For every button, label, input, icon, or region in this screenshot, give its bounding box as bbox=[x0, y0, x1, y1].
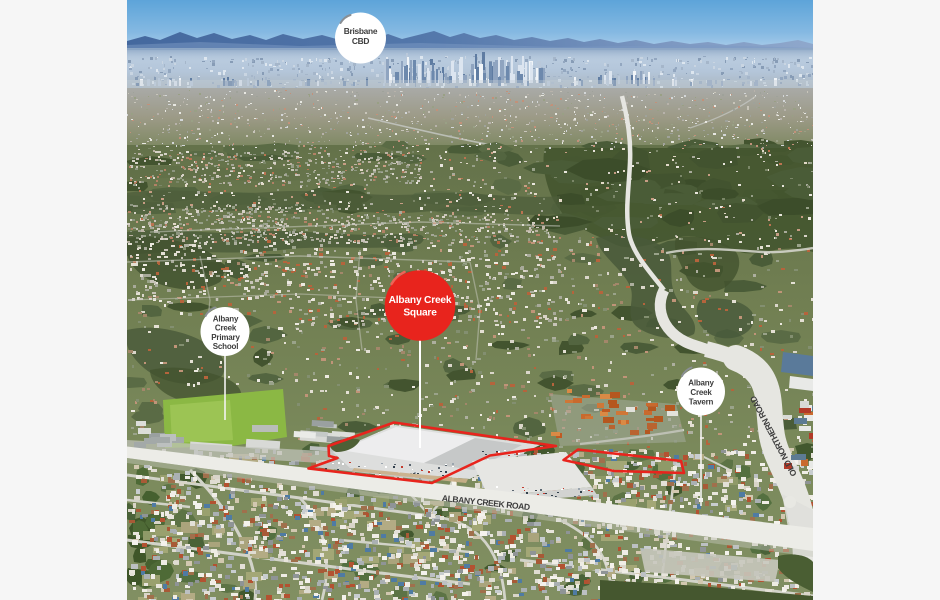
svg-text:Creek: Creek bbox=[215, 324, 237, 333]
svg-text:Tavern: Tavern bbox=[689, 398, 714, 407]
svg-text:Square: Square bbox=[403, 308, 437, 319]
svg-text:School: School bbox=[213, 342, 238, 351]
svg-text:Primary: Primary bbox=[211, 333, 240, 342]
svg-text:CBD: CBD bbox=[352, 36, 369, 46]
svg-text:Albany: Albany bbox=[213, 315, 239, 324]
svg-text:Brisbane: Brisbane bbox=[344, 26, 378, 36]
svg-text:Albany: Albany bbox=[688, 379, 714, 388]
svg-text:Albany Creek: Albany Creek bbox=[389, 295, 452, 306]
svg-text:Creek: Creek bbox=[690, 388, 712, 397]
